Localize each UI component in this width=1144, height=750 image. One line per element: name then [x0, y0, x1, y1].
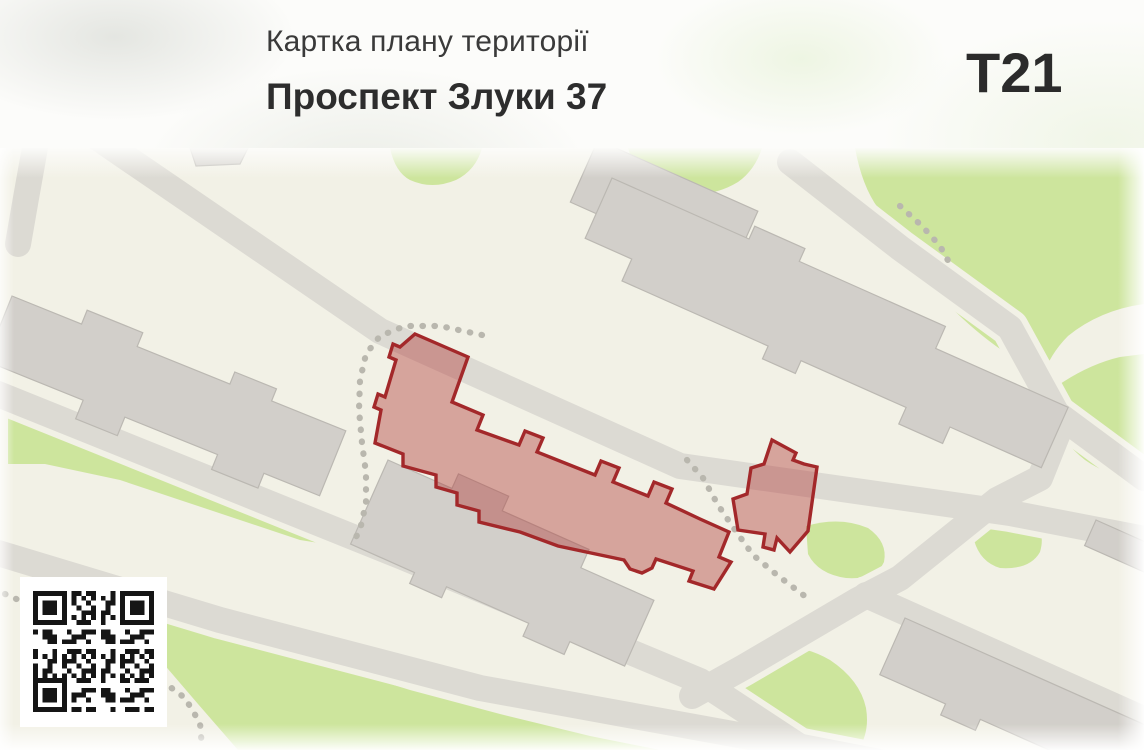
card-header: Картка плану території Проспект Злуки 37…: [0, 0, 1144, 148]
qr-pattern: [33, 591, 154, 712]
building: [190, 148, 248, 166]
card-title: Картка плану території: [266, 25, 589, 59]
territory-map: [0, 148, 1144, 750]
sheet-code: Т21: [966, 40, 1063, 105]
map-canvas: [0, 148, 1144, 750]
qr-code: [20, 577, 167, 727]
road: [18, 148, 36, 244]
territory-plan-card: Картка плану території Проспект Злуки 37…: [0, 0, 1144, 750]
card-subtitle: Проспект Злуки 37: [266, 76, 607, 118]
